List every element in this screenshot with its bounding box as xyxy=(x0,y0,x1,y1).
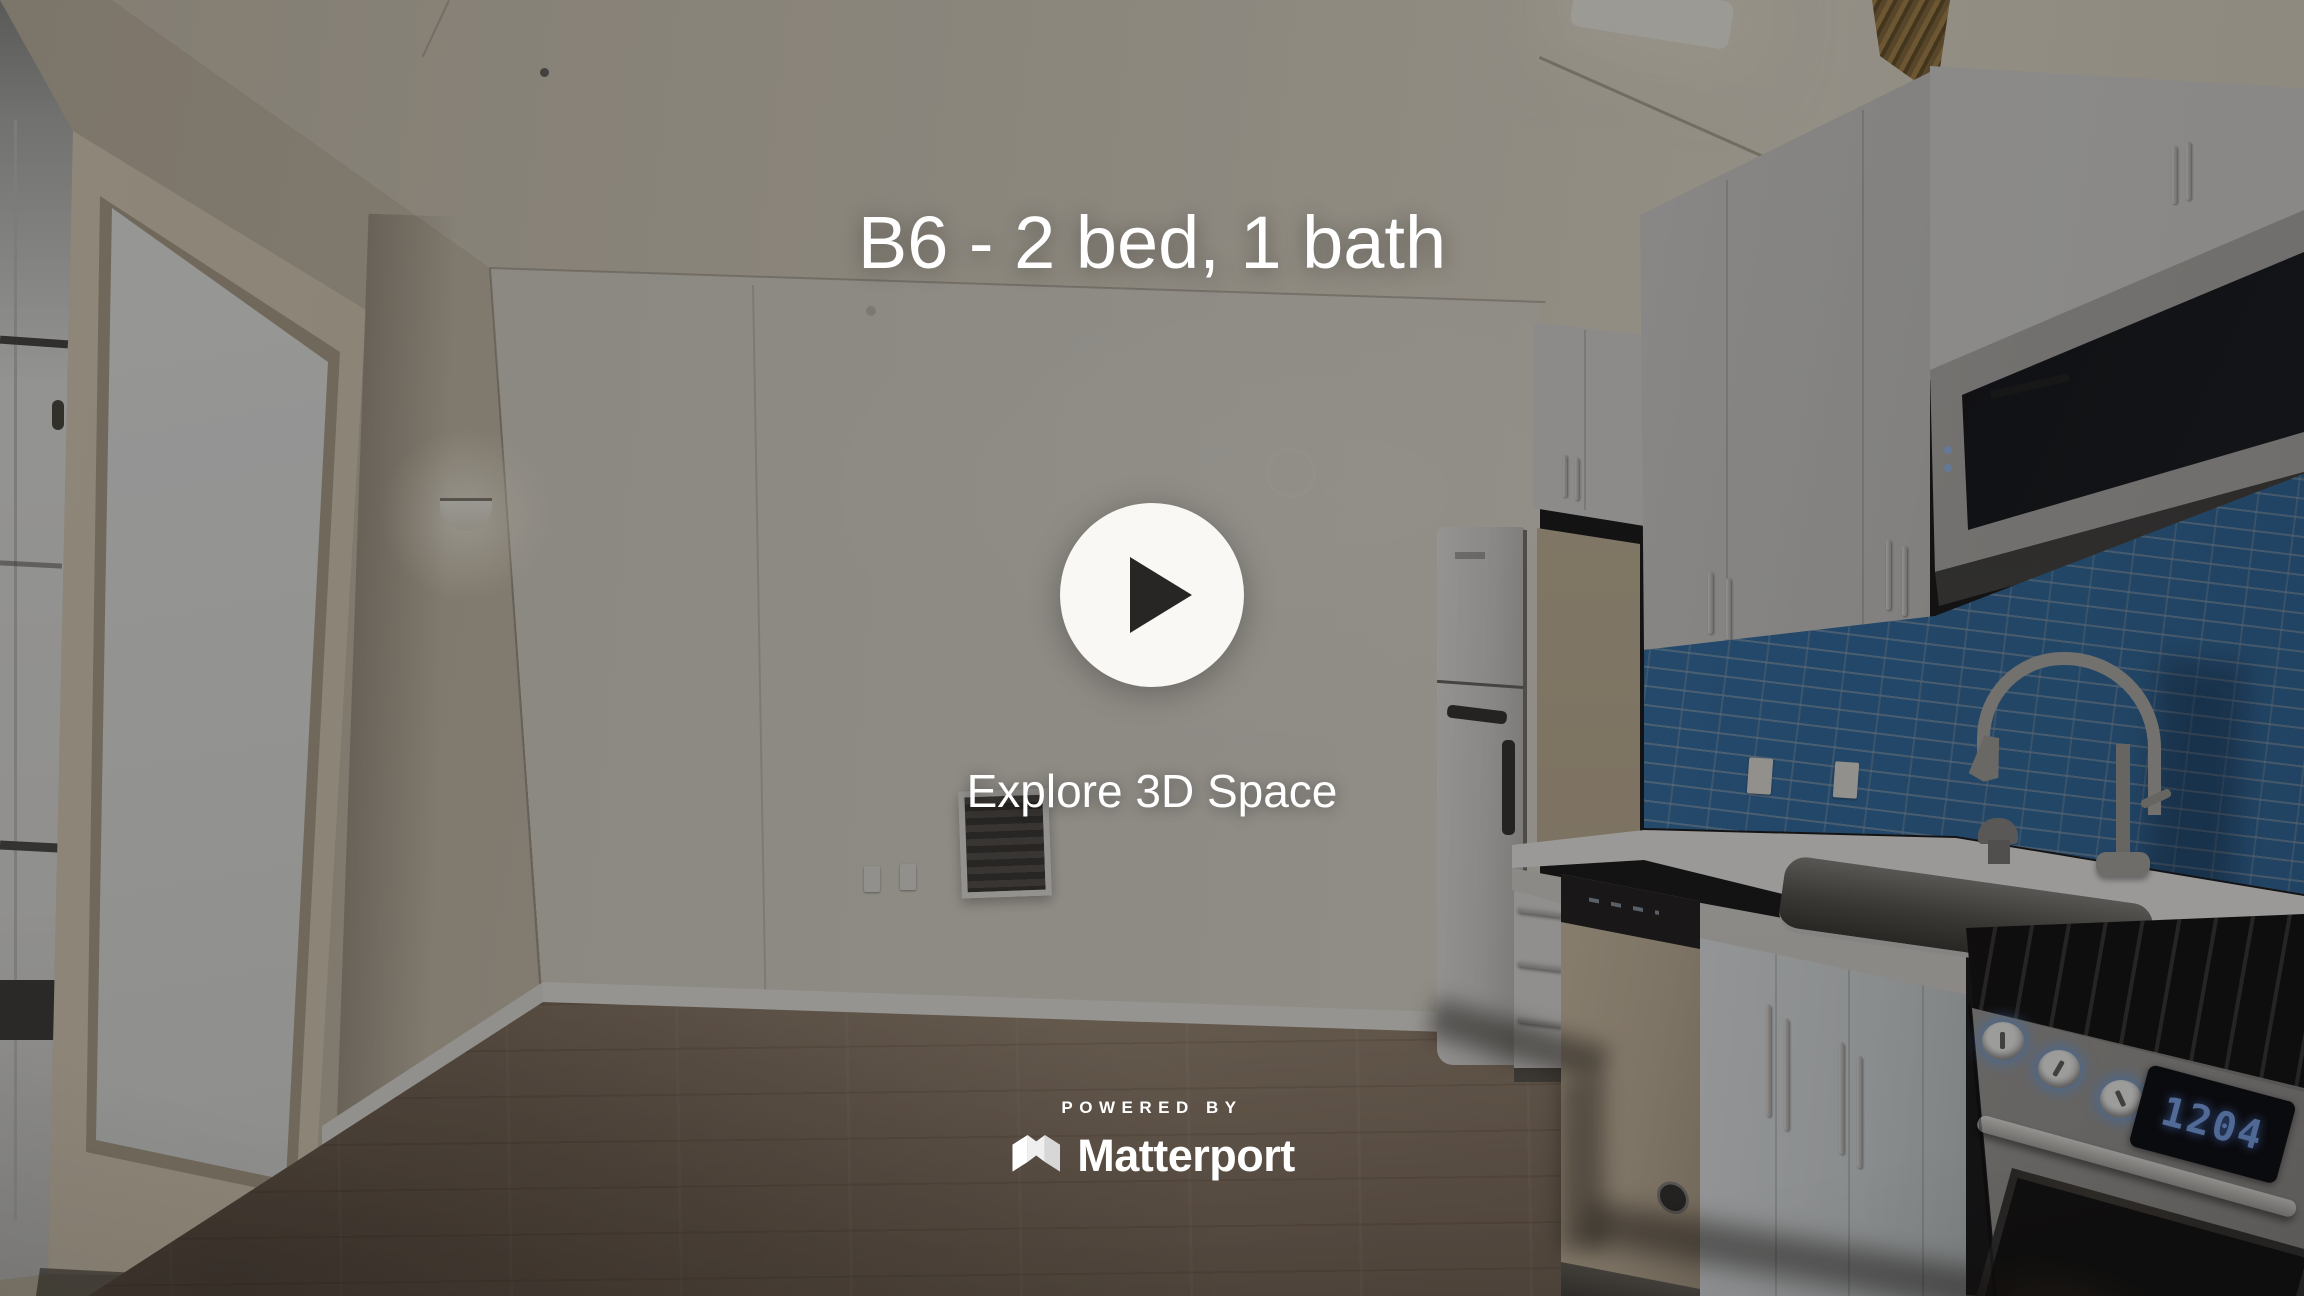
matterport-brand: Matterport xyxy=(1009,1130,1295,1182)
matterport-tour-cover: 1204 B6 - 2 bed, 1 bath Explore 3D Space… xyxy=(0,0,2304,1296)
matterport-wordmark: Matterport xyxy=(1077,1130,1295,1182)
powered-by-label: POWERED BY xyxy=(1061,1098,1242,1118)
space-title: B6 - 2 bed, 1 bath xyxy=(858,200,1446,285)
play-button[interactable] xyxy=(1060,503,1244,687)
matterport-logo-icon xyxy=(1009,1131,1063,1181)
explore-3d-label: Explore 3D Space xyxy=(967,764,1338,818)
play-icon xyxy=(1130,557,1192,633)
